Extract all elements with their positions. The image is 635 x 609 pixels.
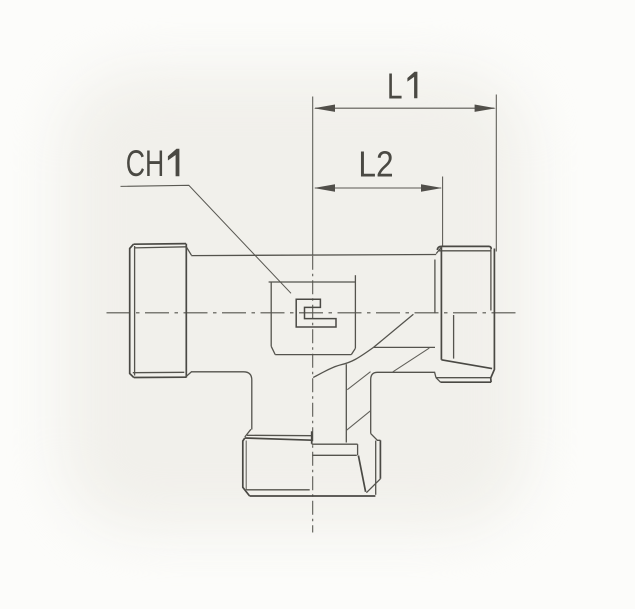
svg-text:CH: CH xyxy=(126,142,165,184)
svg-text:L2: L2 xyxy=(358,144,393,185)
svg-text:L: L xyxy=(387,65,403,106)
